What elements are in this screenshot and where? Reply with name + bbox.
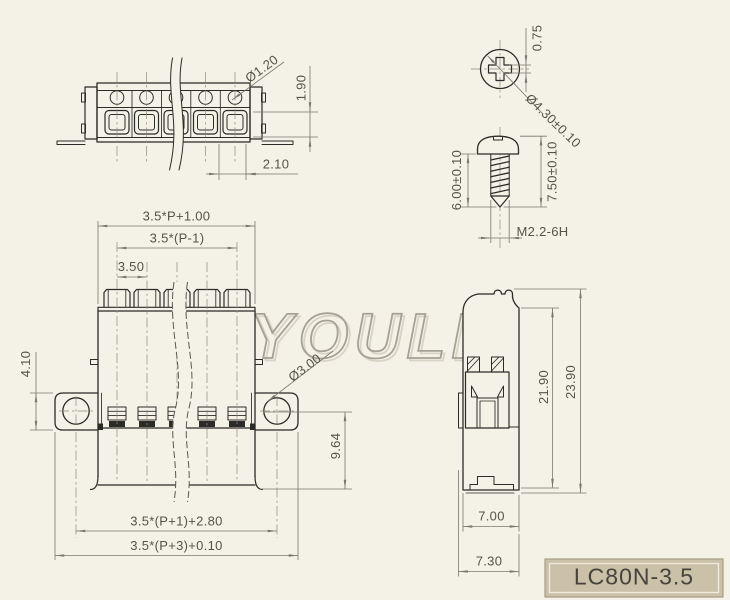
dim-total-length: 7.50±0.10 [545, 141, 560, 201]
dim-inner-height: 21.90 [536, 370, 551, 404]
drawing-canvas: YOULE YOULE Ø1.20 1.90 [0, 0, 730, 600]
dim-overall-width: 7.30 [476, 554, 503, 569]
dim-pitch: 3.50 [118, 259, 145, 274]
dim-ear-span: 3.5*(P+1)+2.80 [130, 514, 222, 529]
drawing-sheet: YOULE YOULE Ø1.20 1.90 [0, 0, 730, 600]
screw-head-top-view: Ø4.30±0.10 0.75 [471, 25, 584, 151]
dim-overall-height: 23.90 [563, 365, 578, 399]
dim-lower-height: 9.64 [328, 433, 343, 460]
part-number: LC80N-3.5 [574, 564, 694, 590]
screw-side-view: 6.00±0.10 7.50±0.10 M2.2-6H [449, 127, 568, 250]
mounting-ear-right [250, 393, 298, 430]
strip-elevation-view: Ø1.20 1.90 2.10 [57, 52, 318, 180]
dim-screw-slot-width: 0.75 [530, 25, 545, 52]
dim-pole-span: 3.5*(P-1) [150, 231, 205, 246]
title-block: LC80N-3.5 [545, 559, 723, 597]
dim-overall-top: 3.5*P+1.00 [143, 209, 211, 224]
side-view: 21.90 23.90 7.00 7.30 [459, 289, 587, 577]
dim-ear-height: 4.10 [18, 351, 33, 378]
dim-terminal-depth: 1.90 [294, 75, 309, 102]
dim-thread-spec: M2.2-6H [517, 224, 569, 239]
dim-thread-length: 6.00±0.10 [449, 150, 464, 210]
screw-head [478, 136, 519, 154]
dim-overall-bottom: 3.5*(P+3)+0.10 [130, 538, 222, 553]
screw-tip [491, 196, 509, 207]
mounting-ear-left [55, 393, 103, 430]
front-view: 3.5*P+1.00 3.5*(P-1) 3.50 4.10 Ø3.00 9.6… [18, 209, 352, 561]
dim-body-width: 7.00 [478, 509, 505, 524]
dim-opening-width: 2.10 [263, 157, 290, 172]
